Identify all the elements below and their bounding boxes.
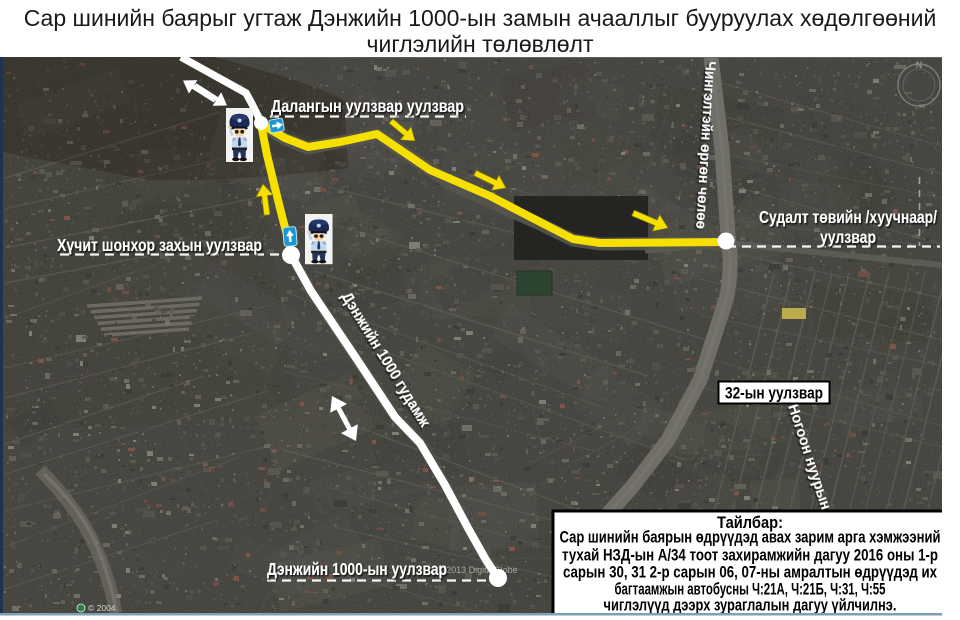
svg-text:Сар шинийн баярын өдрүүдэд ава: Сар шинийн баярын өдрүүдэд авах зарим ар…	[560, 528, 941, 547]
svg-text:чиглэлүүд дээрх зураглалын даг: чиглэлүүд дээрх зураглалын дагуу үйлчилн…	[604, 596, 897, 615]
svg-text:Хүчит шонхор захын уулзвар: Хүчит шонхор захын уулзвар	[57, 235, 262, 255]
svg-text:Судалт төвийн /хуучнаар/: Судалт төвийн /хуучнаар/	[759, 207, 937, 227]
svg-text:32-ын уулзвар: 32-ын уулзвар	[725, 384, 823, 403]
svg-text:N: N	[916, 60, 923, 70]
svg-text:© 2004: © 2004	[88, 603, 116, 613]
svg-text:Далангын уулзвар уулзвар: Далангын уулзвар уулзвар	[271, 96, 464, 116]
svg-text:Дэнжийн 1000-ын уулзвар: Дэнжийн 1000-ын уулзвар	[267, 559, 447, 579]
svg-text:уулзвар: уулзвар	[820, 227, 876, 247]
